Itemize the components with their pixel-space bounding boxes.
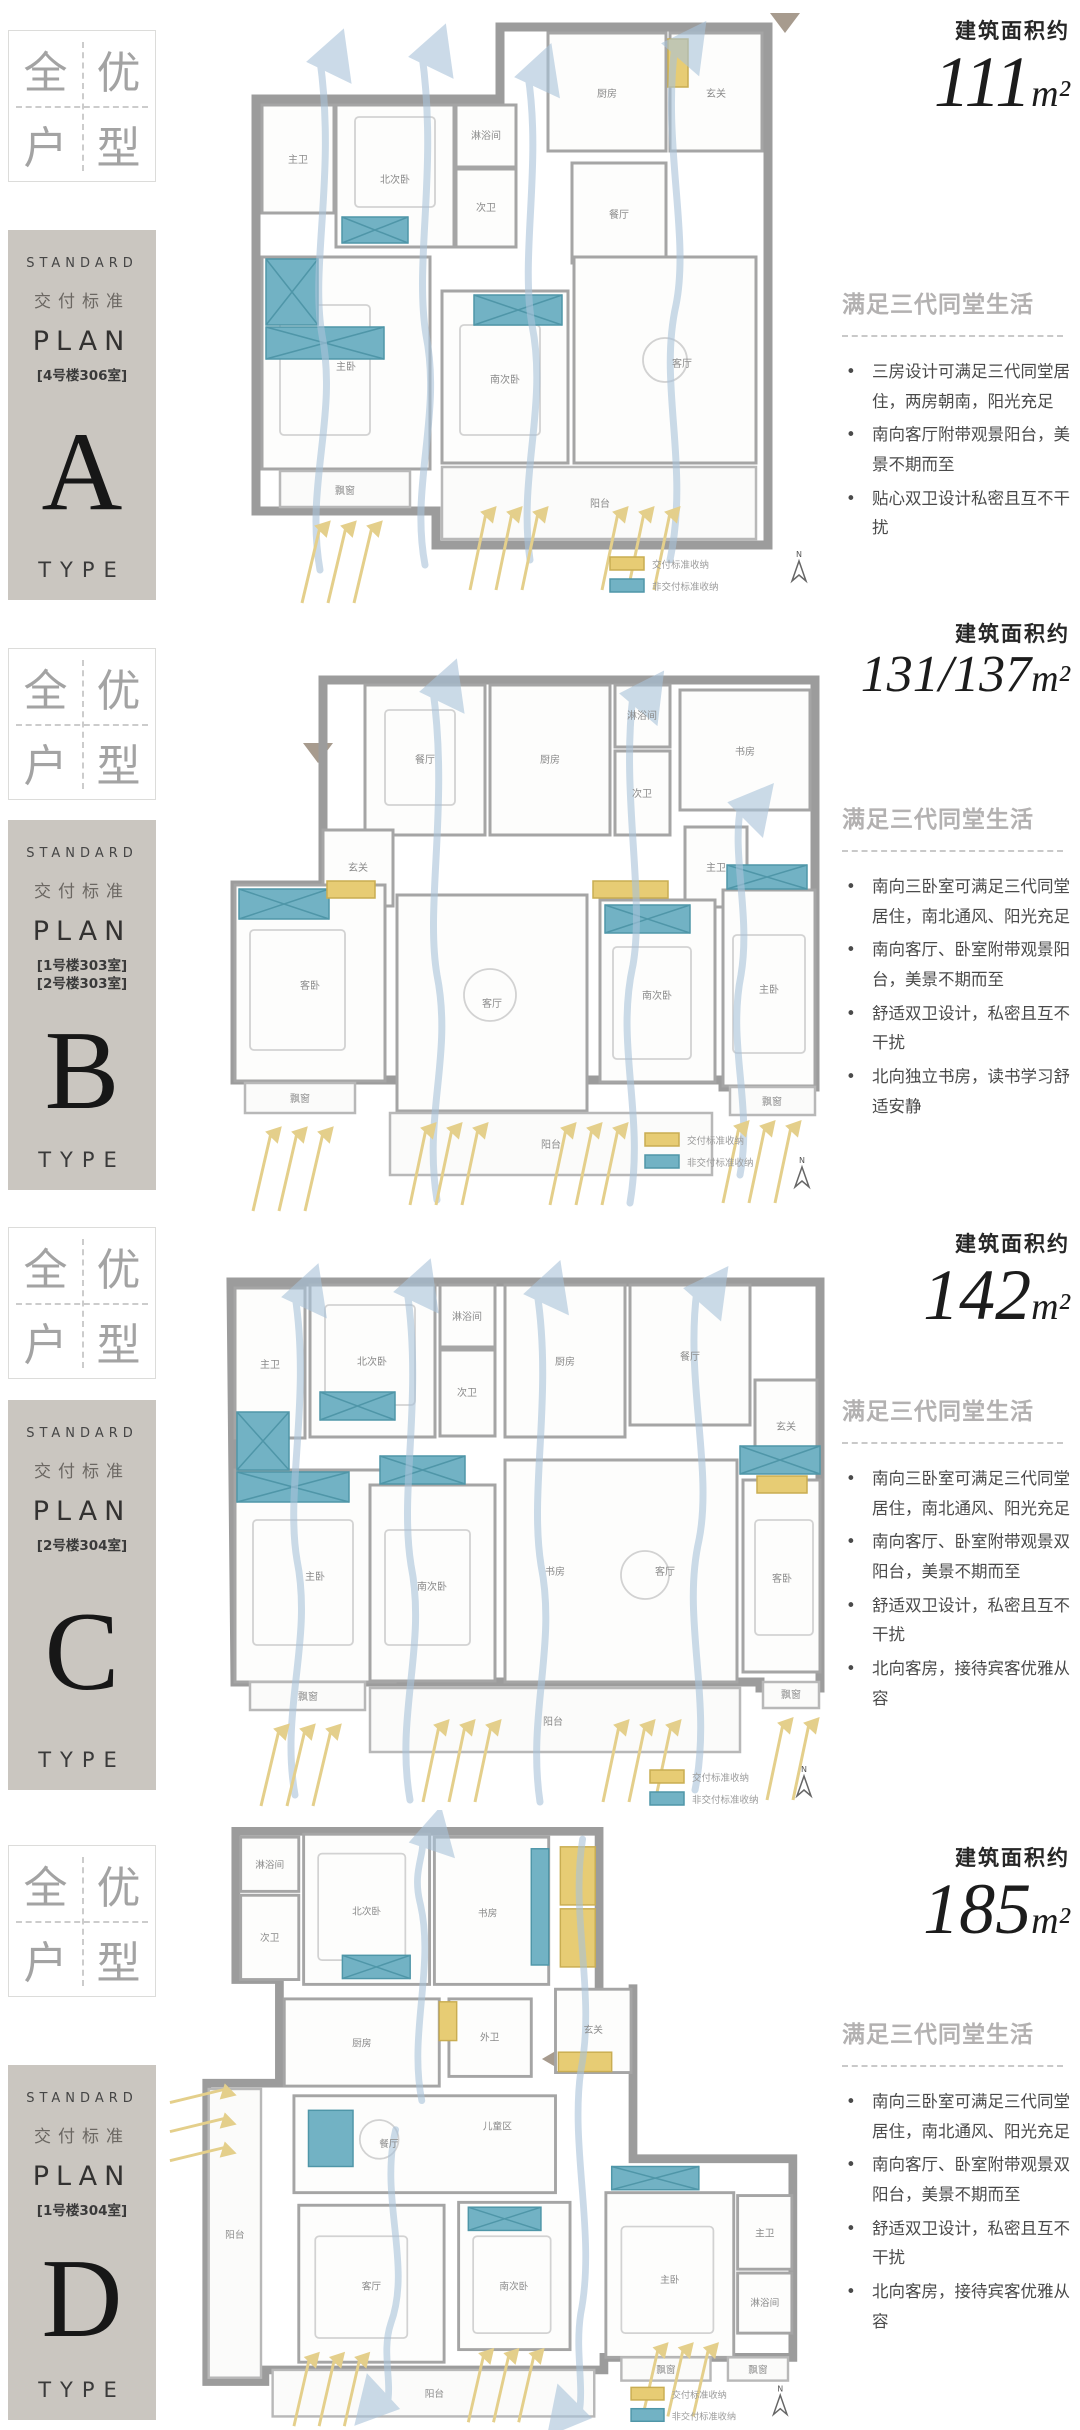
desc-block-c: 满足三代同堂生活 南向三卧室可满足三代同堂居住，南北通风、阳光充足 南向客厅、卧… [842, 1392, 1072, 1718]
card-room: [1号楼303室] [37, 957, 127, 975]
area-label: 建筑面积约 [842, 15, 1070, 45]
bullet-item: 南向三卧室可满足三代同堂居住，南北通风、阳光充足 [842, 2087, 1072, 2146]
room-label: 主卧 [305, 1570, 325, 1583]
room-label: 淋浴间 [750, 2296, 779, 2309]
bullet-item: 北向客房，接待宾客优雅从容 [842, 1654, 1072, 1713]
bullet-item: 南向客厅附带观景阳台，美景不期而至 [842, 420, 1072, 479]
area-block-a: 建筑面积约 111m² [842, 15, 1070, 121]
room-label: 阳台 [590, 497, 610, 510]
svg-text:N: N [801, 1765, 807, 1774]
floor-plan-b: 餐厅 厨房 淋浴间 次卫 书房 玄关 主卫 客卧 客厅 南次卧 主卧 飘窗 飘窗… [175, 655, 835, 1215]
room-label: 南次卧 [642, 989, 672, 1002]
room-label: 淋浴间 [255, 1858, 284, 1871]
room-label: 厨房 [555, 1355, 575, 1368]
room-label: 餐厅 [379, 2137, 399, 2150]
legend-non-delivered: 非交付标准收纳 [652, 581, 719, 593]
bullet-list: 南向三卧室可满足三代同堂居住，南北通风、阳光充足 南向客厅、卧室附带观景双阳台，… [842, 1464, 1072, 1714]
compass-icon: N [792, 550, 806, 581]
card-letter: A [42, 416, 123, 528]
legend-delivered: 交付标准收纳 [687, 1135, 744, 1147]
bullet-item: 贴心双卫设计私密且互不干扰 [842, 484, 1072, 543]
north-triangle [770, 13, 800, 33]
room-label: 淋浴间 [627, 709, 657, 722]
card-plan: PLAN [33, 326, 132, 357]
room-label: 主卧 [759, 983, 779, 996]
badge-char: 优 [82, 31, 155, 106]
room-label: 飘窗 [298, 1690, 318, 1703]
plan-card-d: STANDARD 交付标准 PLAN [1号楼304室] D TYPE [8, 2065, 156, 2420]
badge-char: 全 [9, 649, 82, 724]
area-label: 建筑面积约 [842, 1228, 1070, 1258]
room-label: 飘窗 [762, 1095, 782, 1108]
badge-char: 户 [9, 1921, 82, 1996]
room-label: 主卧 [660, 2273, 680, 2286]
card-plan: PLAN [33, 2161, 132, 2192]
card-type: TYPE [38, 1148, 126, 1172]
badge-char: 全 [9, 31, 82, 106]
room-label: 阳台 [541, 1138, 561, 1151]
bullet-item: 南向客厅、卧室附带观景阳台，美景不期而至 [842, 935, 1072, 994]
room-label: 飘窗 [748, 2363, 767, 2376]
bullet-item: 舒适双卫设计，私密且互不干扰 [842, 1591, 1072, 1650]
card-letter: D [42, 2243, 123, 2355]
room-label: 外卫 [480, 2032, 500, 2044]
room-label: 书房 [545, 1565, 565, 1578]
room-label: 餐厅 [680, 1350, 700, 1363]
card-standard: STANDARD [26, 2091, 138, 2106]
room-label: 客厅 [482, 997, 502, 1010]
desc-title: 满足三代同堂生活 [842, 2015, 1072, 2049]
bullet-item: 南向客厅、卧室附带观景双阳台，美景不期而至 [842, 2150, 1072, 2209]
room-label: 餐厅 [609, 208, 629, 221]
dashed-divider [842, 335, 1063, 337]
room-label: 淋浴间 [452, 1310, 482, 1323]
card-room: [2号楼304室] [37, 1537, 127, 1555]
card-standard: STANDARD [26, 1426, 138, 1441]
badge-char: 优 [82, 649, 155, 724]
room-label: 客卧 [772, 1572, 792, 1585]
desc-title: 满足三代同堂生活 [842, 1392, 1072, 1426]
room-label: 阳台 [543, 1715, 563, 1728]
area-label: 建筑面积约 [842, 1842, 1070, 1872]
room-label: 飘窗 [335, 484, 355, 497]
room-label: 厨房 [352, 2036, 371, 2049]
room-label: 玄关 [706, 87, 726, 100]
room-label: 主卫 [755, 2227, 775, 2239]
room-label: 玄关 [584, 2023, 604, 2036]
bullet-item: 北向客房，接待宾客优雅从容 [842, 2277, 1072, 2336]
legend-non-delivered: 非交付标准收纳 [692, 1794, 759, 1806]
room-label: 南次卧 [417, 1580, 447, 1593]
bullet-item: 舒适双卫设计，私密且互不干扰 [842, 999, 1072, 1058]
area-value: 142m² [842, 1258, 1070, 1334]
badge-char: 型 [82, 106, 155, 181]
dashed-divider [842, 1442, 1063, 1444]
badge-char: 户 [9, 106, 82, 181]
svg-text:N: N [799, 1156, 805, 1165]
room-label: 书房 [735, 745, 755, 758]
desc-block-a: 满足三代同堂生活 三房设计可满足三代同堂居住，两房朝南，阳光充足 南向客厅附带观… [842, 285, 1072, 547]
bullet-item: 南向三卧室可满足三代同堂居住，南北通风、阳光充足 [842, 1464, 1072, 1523]
room-label: 主卫 [706, 862, 726, 874]
room-label: 餐厅 [415, 753, 435, 766]
bullet-list: 南向三卧室可满足三代同堂居住，南北通风、阳光充足 南向客厅、卧室附带观景双阳台，… [842, 2087, 1072, 2337]
card-type: TYPE [38, 2378, 126, 2402]
room-label: 厨房 [540, 753, 560, 766]
desc-block-d: 满足三代同堂生活 南向三卧室可满足三代同堂居住，南北通风、阳光充足 南向客厅、卧… [842, 2015, 1072, 2341]
north-triangle [303, 743, 333, 763]
floor-plan-d: 淋浴间 次卫 北次卧 书房 厨房 外卫 玄关 餐厅 儿童区 客厅 南次卧 主卧 … [148, 1810, 808, 2430]
room-label: 玄关 [776, 1420, 796, 1433]
bullet-list: 三房设计可满足三代同堂居住，两房朝南，阳光充足 南向客厅附带观景阳台，美景不期而… [842, 357, 1072, 543]
section-type-b: 全 优 户 型 STANDARD 交付标准 PLAN [1号楼303室] [2号… [0, 610, 1080, 1220]
badge-char: 户 [9, 724, 82, 799]
svg-text:N: N [796, 550, 802, 559]
card-cn: 交付标准 [34, 1457, 130, 1482]
section-type-a: 全 优 户 型 STANDARD 交付标准 PLAN [4号楼306室] A T… [0, 0, 1080, 610]
quality-badge: 全 优 户 型 [8, 1227, 156, 1379]
plan-legend: 交付标准收纳 非交付标准收纳 [650, 1770, 759, 1806]
room-label: 淋浴间 [471, 129, 501, 142]
card-room: [4号楼306室] [37, 367, 127, 385]
room-label: 次卫 [632, 787, 652, 800]
card-letter: B [45, 1015, 120, 1127]
card-room: [1号楼304室] [37, 2202, 127, 2220]
desc-block-b: 满足三代同堂生活 南向三卧室可满足三代同堂居住，南北通风、阳光充足 南向客厅、卧… [842, 800, 1072, 1126]
bullet-item: 南向三卧室可满足三代同堂居住，南北通风、阳光充足 [842, 872, 1072, 931]
badge-char: 优 [82, 1846, 155, 1921]
bullet-item: 北向独立书房，读书学习舒适安静 [842, 1062, 1072, 1121]
card-cn: 交付标准 [34, 877, 130, 902]
badge-char: 型 [82, 1921, 155, 1996]
card-plan: PLAN [33, 1496, 132, 1527]
room-label: 厨房 [597, 87, 617, 100]
quality-badge: 全 优 户 型 [8, 648, 156, 800]
area-value: 131/137m² [842, 648, 1070, 703]
dashed-divider [842, 2065, 1063, 2067]
room-label: 北次卧 [380, 173, 410, 186]
quality-badge: 全 优 户 型 [8, 30, 156, 182]
bullet-item: 舒适双卫设计，私密且互不干扰 [842, 2214, 1072, 2273]
card-type: TYPE [38, 1748, 126, 1772]
card-letter: C [45, 1596, 120, 1708]
room-label: 南次卧 [499, 2280, 528, 2293]
badge-char: 户 [9, 1303, 82, 1378]
room-label: 主卧 [336, 360, 356, 373]
room-label: 主卫 [288, 154, 308, 166]
plan-card-a: STANDARD 交付标准 PLAN [4号楼306室] A TYPE [8, 230, 156, 600]
room-label: 玄关 [348, 861, 368, 874]
badge-char: 型 [82, 724, 155, 799]
area-value: 111m² [842, 45, 1070, 121]
room-label: 阳台 [225, 2228, 244, 2241]
card-standard: STANDARD [26, 256, 138, 271]
section-type-d: 全 优 户 型 STANDARD 交付标准 PLAN [1号楼304室] D T… [0, 1820, 1080, 2420]
area-value: 185m² [842, 1872, 1070, 1948]
plan-legend: 交付标准收纳 非交付标准收纳 [610, 557, 719, 593]
section-type-c: 全 优 户 型 STANDARD 交付标准 PLAN [2号楼304室] C T… [0, 1220, 1080, 1820]
badge-char: 型 [82, 1303, 155, 1378]
room-label: 飘窗 [781, 1688, 801, 1701]
room-label: 次卫 [476, 201, 496, 214]
area-block-c: 建筑面积约 142m² [842, 1228, 1070, 1334]
card-standard: STANDARD [26, 846, 138, 861]
quality-badge: 全 优 户 型 [8, 1845, 156, 1997]
room-label: 客厅 [672, 357, 692, 370]
room-label: 儿童区 [483, 2120, 512, 2133]
room-label: 主卫 [260, 1359, 280, 1371]
room-label: 北次卧 [352, 1905, 381, 1918]
card-room: [2号楼303室] [37, 975, 127, 993]
card-cn: 交付标准 [34, 287, 130, 312]
room-label: 次卫 [457, 1386, 477, 1399]
room-label: 书房 [478, 1907, 497, 1920]
area-block-d: 建筑面积约 185m² [842, 1842, 1070, 1948]
badge-char: 全 [9, 1228, 82, 1303]
room-label: 阳台 [425, 2387, 444, 2400]
compass-icon: N [795, 1156, 809, 1187]
room-label: 南次卧 [490, 373, 520, 386]
desc-title: 满足三代同堂生活 [842, 285, 1072, 319]
bullet-item: 南向客厅、卧室附带观景双阳台，美景不期而至 [842, 1527, 1072, 1586]
bullet-item: 三房设计可满足三代同堂居住，两房朝南，阳光充足 [842, 357, 1072, 416]
room-label: 客厅 [362, 2280, 382, 2293]
area-label: 建筑面积约 [842, 618, 1070, 648]
plan-card-b: STANDARD 交付标准 PLAN [1号楼303室] [2号楼303室] B… [8, 820, 156, 1190]
legend-non-delivered: 非交付标准收纳 [687, 1157, 754, 1169]
dashed-divider [842, 850, 1063, 852]
room-label: 次卫 [260, 1931, 280, 1944]
floor-plan-c: 主卫 北次卧 淋浴间 次卫 厨房 餐厅 玄关 主卧 南次卧 书房 客厅 客卧 飘… [175, 1230, 835, 1810]
legend-non-delivered: 非交付标准收纳 [672, 2410, 736, 2422]
bullet-list: 南向三卧室可满足三代同堂居住，南北通风、阳光充足 南向客厅、卧室附带观景阳台，美… [842, 872, 1072, 1122]
badge-char: 全 [9, 1846, 82, 1921]
legend-delivered: 交付标准收纳 [652, 559, 709, 571]
area-block-b: 建筑面积约 131/137m² [842, 618, 1070, 703]
room-label: 客卧 [300, 979, 320, 992]
card-cn: 交付标准 [34, 2122, 130, 2147]
svg-text:N: N [777, 2384, 783, 2393]
floor-plan-a: 主卫 北次卧 淋浴间 次卫 厨房 玄关 餐厅 主卧 南次卧 客厅 飘窗 阳台 交… [170, 5, 830, 605]
room-label: 飘窗 [656, 2363, 675, 2376]
room-label: 北次卧 [357, 1355, 387, 1368]
badge-char: 优 [82, 1228, 155, 1303]
legend-delivered: 交付标准收纳 [692, 1772, 749, 1784]
room-label: 客厅 [655, 1565, 675, 1578]
compass-icon: N [773, 2384, 787, 2414]
card-type: TYPE [38, 558, 126, 582]
legend-delivered: 交付标准收纳 [672, 2389, 727, 2401]
plan-card-c: STANDARD 交付标准 PLAN [2号楼304室] C TYPE [8, 1400, 156, 1790]
desc-title: 满足三代同堂生活 [842, 800, 1072, 834]
card-plan: PLAN [33, 916, 132, 947]
room-label: 飘窗 [290, 1092, 310, 1105]
